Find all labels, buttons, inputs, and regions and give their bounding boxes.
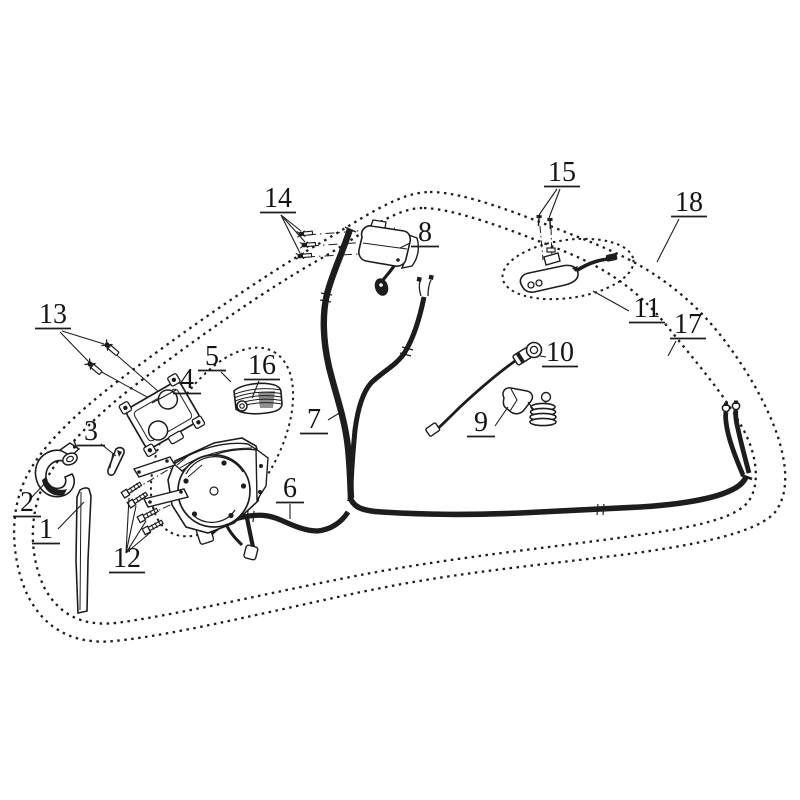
- part-10-breaker: [512, 343, 541, 366]
- branch-cable-with-wire-ends: [351, 275, 434, 492]
- callout-14-number: 14: [264, 183, 292, 214]
- callout-17-number: 17: [674, 309, 702, 340]
- callout-12: 12: [109, 543, 145, 574]
- callout-10: 10: [542, 337, 578, 368]
- callout-7: 7: [300, 404, 328, 435]
- part-16-cable-coil: [234, 383, 282, 413]
- callout-17: 17: [670, 309, 706, 340]
- part-1-strap: [76, 488, 91, 613]
- exploded-parts-diagram: 1 2 3 4 5 6 7 8: [0, 0, 800, 800]
- part-13-screws: [84, 339, 120, 376]
- callout-4-number: 4: [180, 364, 194, 395]
- callout-8-number: 8: [418, 217, 432, 248]
- callout-15-number: 15: [548, 157, 576, 188]
- callout-10-number: 10: [546, 337, 574, 368]
- callout-12-number: 12: [113, 543, 141, 574]
- callout-6-number: 6: [283, 473, 297, 504]
- callout-1-number: 1: [39, 514, 53, 545]
- callout-15: 15: [544, 157, 580, 188]
- ring-terminal-icon: [722, 401, 739, 412]
- part-2-hook: [35, 441, 79, 497]
- callout-16: 16: [244, 350, 280, 381]
- callout-11: 11: [629, 293, 665, 324]
- callout-9: 9: [467, 407, 495, 438]
- callout-7-number: 7: [307, 404, 321, 435]
- part-15-screws: [536, 215, 553, 229]
- callout-13-number: 13: [39, 299, 67, 330]
- callout-3-number: 3: [84, 416, 98, 447]
- callout-18-number: 18: [675, 187, 703, 218]
- leader-lines: [31, 189, 679, 553]
- harness-main-run-cable: [350, 477, 746, 514]
- callout-3: 3: [77, 416, 105, 447]
- callout-5-number: 5: [205, 341, 219, 372]
- callout-1: 1: [32, 514, 60, 545]
- callout-16-number: 16: [248, 350, 276, 381]
- callout-6: 6: [276, 473, 304, 504]
- battery-lead-cables: [722, 401, 752, 480]
- parts-diagram-page: 1 2 3 4 5 6 7 8: [0, 0, 800, 800]
- callout-18: 18: [671, 187, 707, 218]
- callout-9-number: 9: [474, 407, 488, 438]
- part-9-bracket-relay: [503, 388, 556, 426]
- callout-5: 5: [198, 341, 226, 372]
- callout-13: 13: [35, 299, 71, 330]
- breaker-thin-cable-10: [425, 361, 515, 437]
- callout-14: 14: [260, 183, 296, 214]
- part-8-switch: [359, 220, 419, 298]
- callout-11-number: 11: [634, 293, 661, 324]
- callout-2-number: 2: [20, 487, 34, 518]
